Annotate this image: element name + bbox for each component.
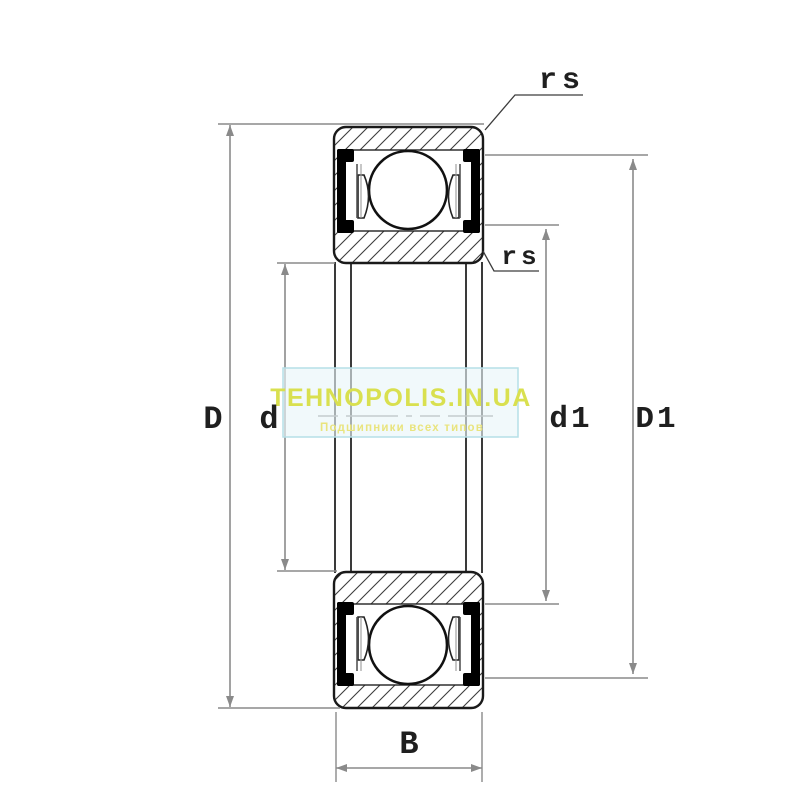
ball-bottom	[369, 606, 447, 684]
watermark-banner: TEHNOPOLIS.IN.UA Подшипники всех типов	[270, 368, 532, 437]
bearing-drawing-page: TEHNOPOLIS.IN.UA Подшипники всех типов D…	[0, 0, 800, 800]
race-shoulder-top-left	[358, 175, 369, 218]
seal-tab	[337, 602, 354, 615]
seal-tab	[337, 149, 354, 162]
seal-tab	[463, 602, 480, 615]
race-shoulder-bottom-left	[358, 617, 369, 660]
label-seal-inner-d1: d1	[549, 402, 592, 437]
label-bore-d: d	[259, 401, 278, 438]
bearing-technical-drawing: TEHNOPOLIS.IN.UA Подшипники всех типов D…	[0, 0, 800, 800]
label-seal-outer-D1: D1	[635, 402, 678, 437]
label-width-B: B	[399, 726, 418, 763]
seal-tab	[337, 220, 354, 233]
race-shoulder-top-right	[449, 175, 460, 218]
race-shoulder-bottom-right	[449, 617, 460, 660]
label-corner-radius-rs-top: rs	[539, 64, 585, 98]
bottom-ring-section	[334, 572, 483, 708]
watermark-title: TEHNOPOLIS.IN.UA	[270, 384, 532, 412]
top-ring-section	[334, 127, 483, 263]
label-outer-diameter-D: D	[203, 401, 222, 438]
seal-tab	[463, 673, 480, 686]
label-corner-radius-rs-side: rs	[501, 242, 540, 272]
seal-tab	[463, 149, 480, 162]
ball-top	[369, 151, 447, 229]
seal-tab	[337, 673, 354, 686]
watermark-subtitle: Подшипники всех типов	[320, 422, 484, 434]
seal-tab	[463, 220, 480, 233]
